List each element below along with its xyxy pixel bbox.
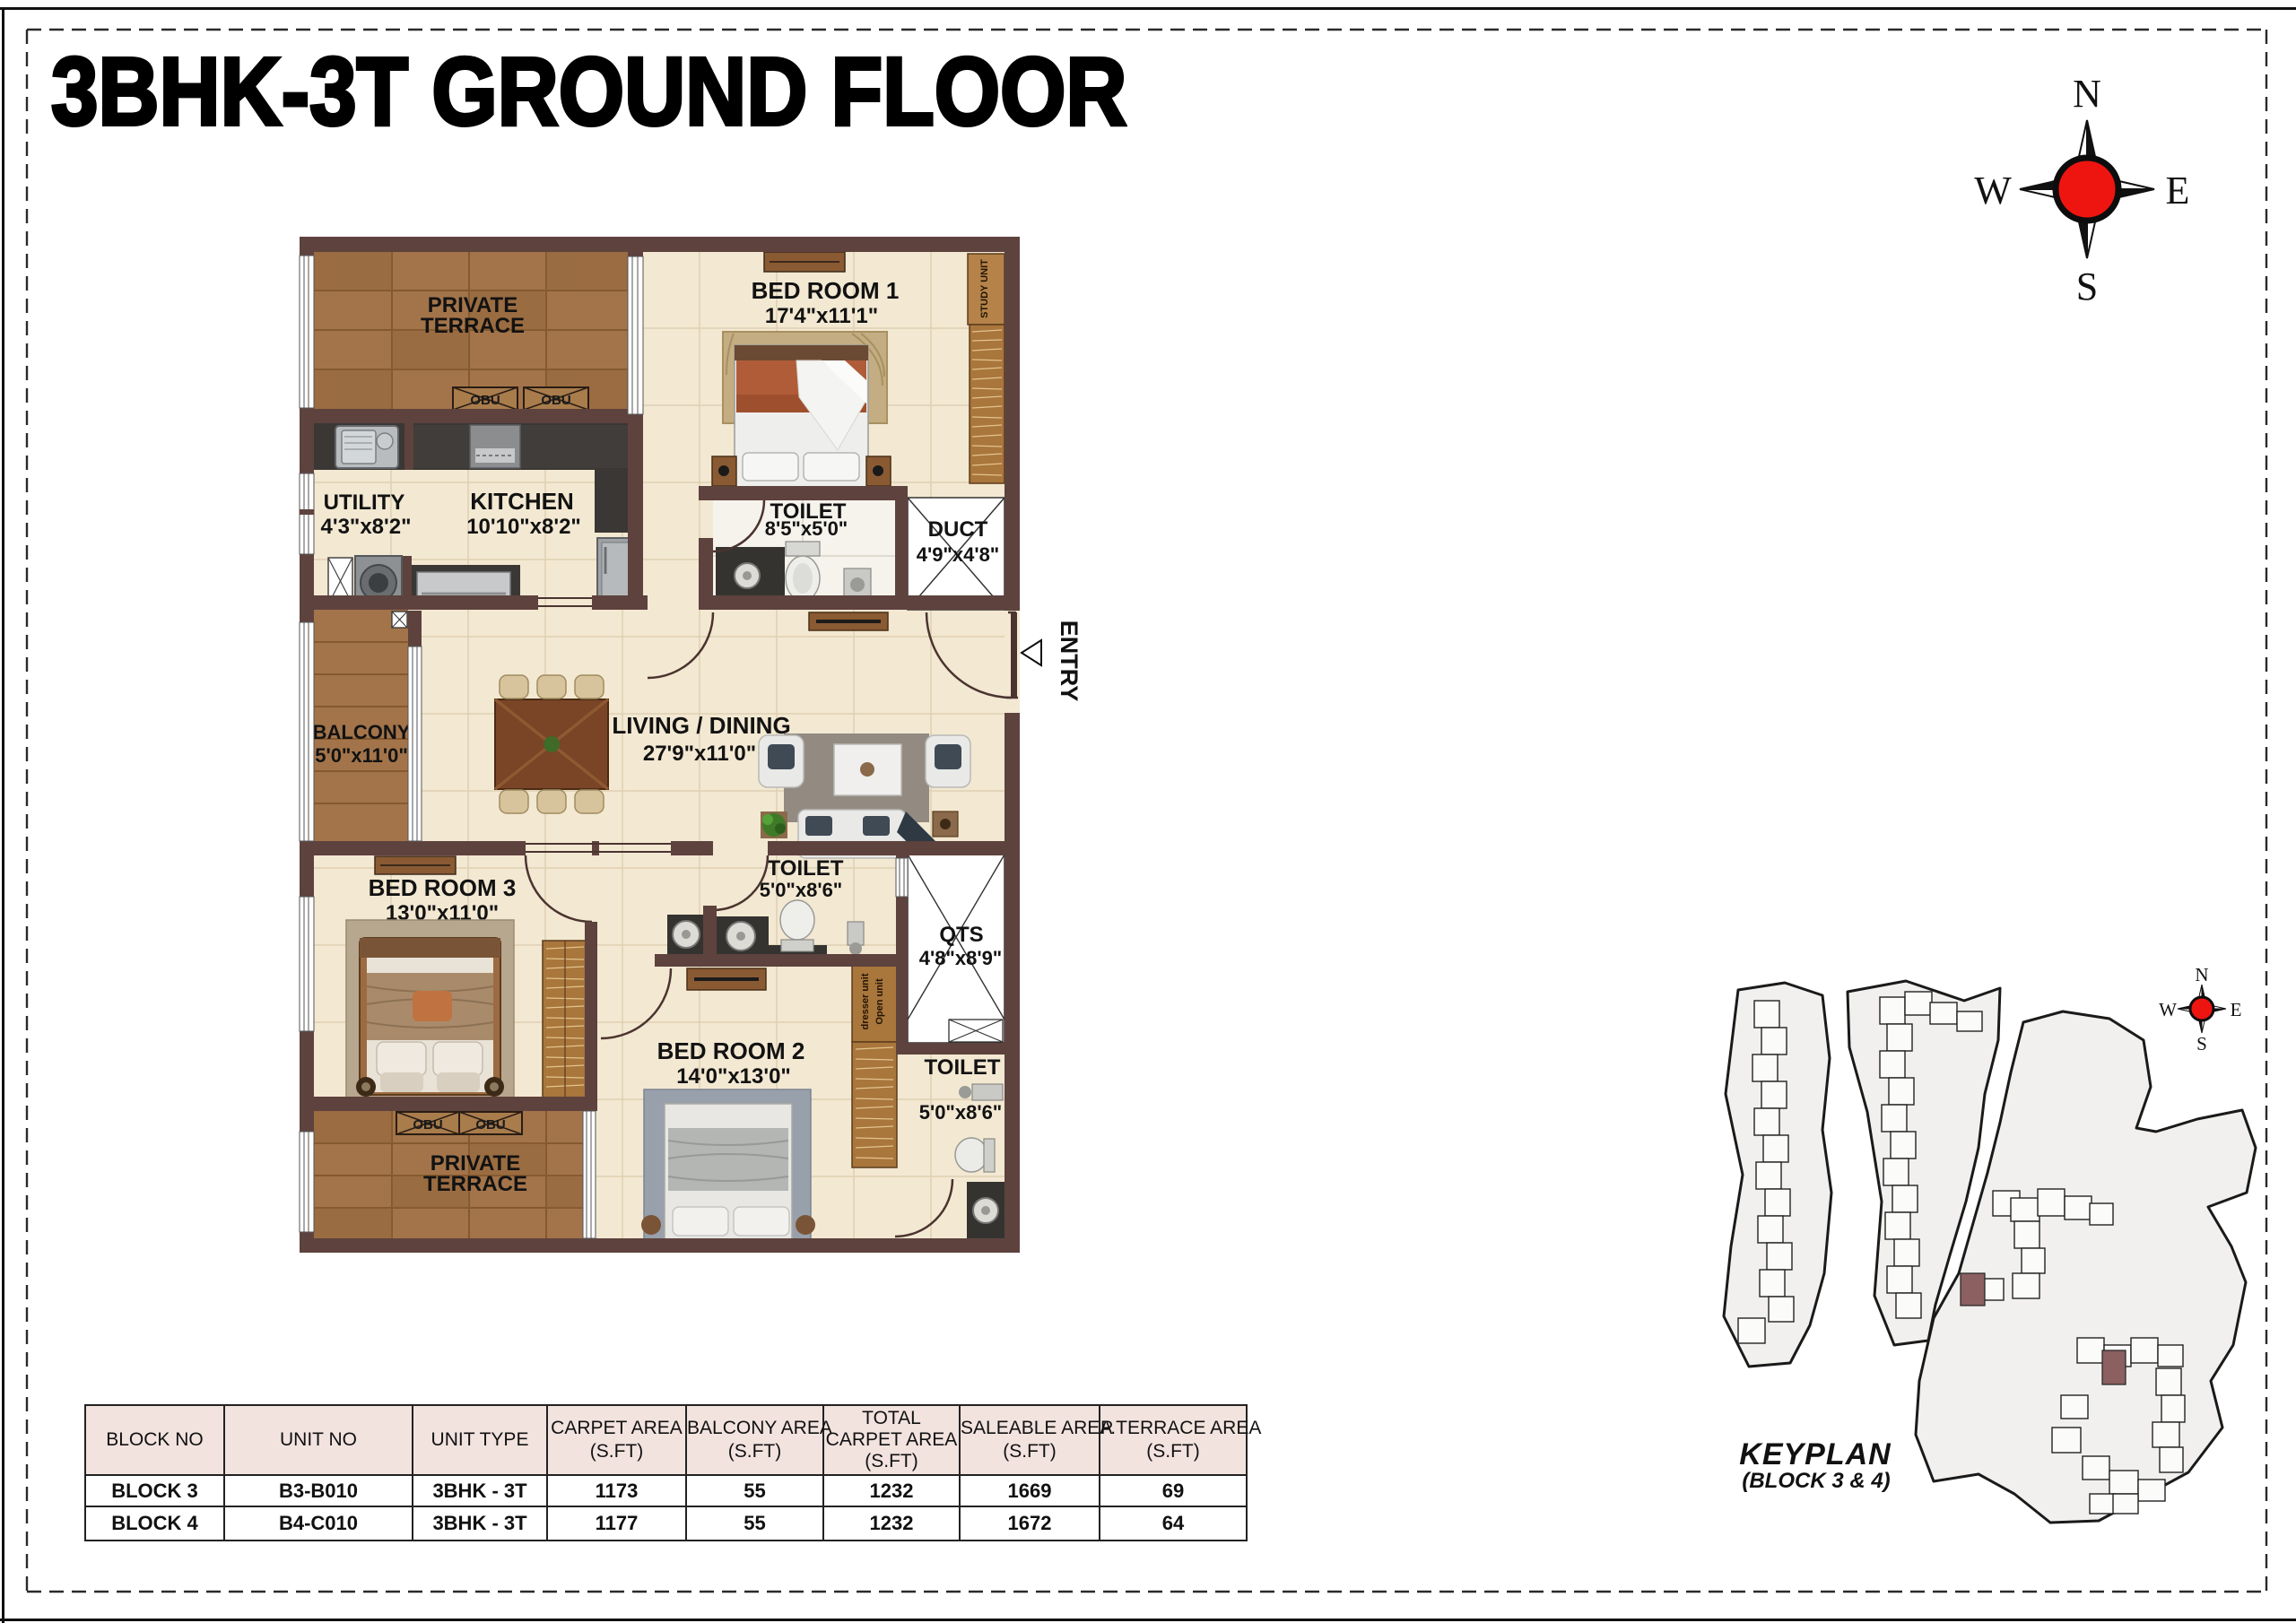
svg-text:DUCT: DUCT [928, 517, 988, 542]
svg-text:S: S [2076, 265, 2098, 308]
svg-text:14'0"x13'0": 14'0"x13'0" [676, 1064, 791, 1089]
svg-text:W: W [2159, 999, 2177, 1020]
svg-text:E: E [2231, 999, 2242, 1020]
svg-text:KEYPLAN: KEYPLAN [1739, 1437, 1892, 1471]
svg-text:OBU: OBU [413, 1117, 442, 1133]
svg-text:E: E [2166, 169, 2190, 213]
svg-text:5'0"x8'6": 5'0"x8'6" [760, 879, 843, 901]
svg-text:N: N [2073, 72, 2101, 116]
svg-text:TOILET: TOILET [925, 1055, 1001, 1080]
svg-text:OBU: OBU [475, 1117, 505, 1133]
svg-text:5'0"x11'0": 5'0"x11'0" [315, 744, 408, 767]
svg-text:4'9"x4'8": 4'9"x4'8" [917, 543, 1000, 566]
svg-text:N: N [2195, 964, 2208, 985]
svg-text:OBU: OBU [541, 393, 570, 408]
svg-text:BED ROOM 3: BED ROOM 3 [369, 874, 517, 901]
svg-text:TERRACE: TERRACE [421, 314, 525, 338]
svg-text:(BLOCK 3 & 4): (BLOCK 3 & 4) [1742, 1469, 1890, 1493]
svg-text:W: W [1974, 169, 2012, 213]
svg-text:KITCHEN: KITCHEN [470, 488, 574, 515]
svg-text:S: S [2196, 1033, 2207, 1055]
svg-text:4'8"x8'9": 4'8"x8'9" [919, 947, 1003, 969]
svg-text:BED ROOM 2: BED ROOM 2 [657, 1037, 805, 1064]
svg-text:STUDY UNIT: STUDY UNIT [979, 259, 990, 318]
svg-text:dresser unit: dresser unit [860, 973, 871, 1029]
svg-text:QTS: QTS [939, 923, 983, 947]
svg-text:TOILET: TOILET [768, 856, 844, 881]
svg-text:BALCONY: BALCONY [313, 721, 411, 743]
svg-text:4'3"x8'2": 4'3"x8'2" [321, 515, 412, 539]
svg-text:BED ROOM 1: BED ROOM 1 [752, 277, 900, 304]
svg-text:OBU: OBU [470, 393, 500, 408]
svg-text:27'9"x11'0": 27'9"x11'0" [643, 742, 756, 766]
svg-text:17'4"x11'1": 17'4"x11'1" [765, 304, 878, 328]
svg-text:LIVING / DINING: LIVING / DINING [612, 712, 790, 739]
svg-text:10'10"x8'2": 10'10"x8'2" [466, 515, 581, 539]
svg-text:Open unit: Open unit [874, 978, 885, 1025]
svg-text:5'0"x8'6": 5'0"x8'6" [919, 1101, 1003, 1124]
svg-text:TERRACE: TERRACE [423, 1172, 527, 1196]
svg-text:UTILITY: UTILITY [324, 490, 405, 515]
svg-text:ENTRY: ENTRY [1056, 621, 1083, 702]
svg-text:8'5"x5'0": 8'5"x5'0" [765, 517, 848, 540]
